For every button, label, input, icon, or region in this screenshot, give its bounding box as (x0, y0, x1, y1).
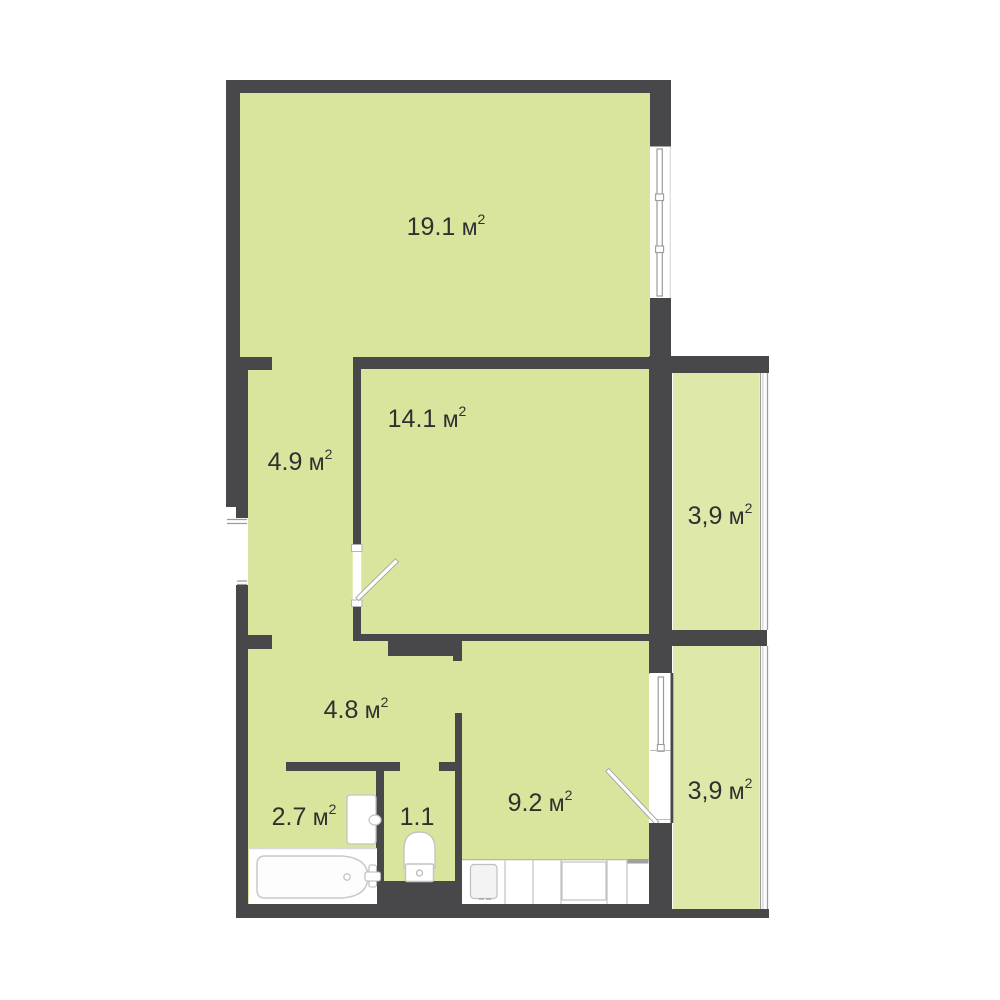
svg-text:4.9 м2: 4.9 м2 (268, 446, 333, 476)
svg-text:1.1: 1.1 (400, 803, 435, 831)
svg-text:9.2 м2: 9.2 м2 (508, 787, 573, 817)
svg-text:3,9 м2: 3,9 м2 (688, 500, 753, 530)
svg-text:3,9 м2: 3,9 м2 (688, 775, 753, 805)
svg-text:19.1 м2: 19.1 м2 (407, 211, 486, 241)
svg-text:4.8 м2: 4.8 м2 (324, 694, 389, 724)
svg-text:14.1 м2: 14.1 м2 (388, 403, 467, 433)
svg-text:2.7 м2: 2.7 м2 (272, 801, 337, 831)
